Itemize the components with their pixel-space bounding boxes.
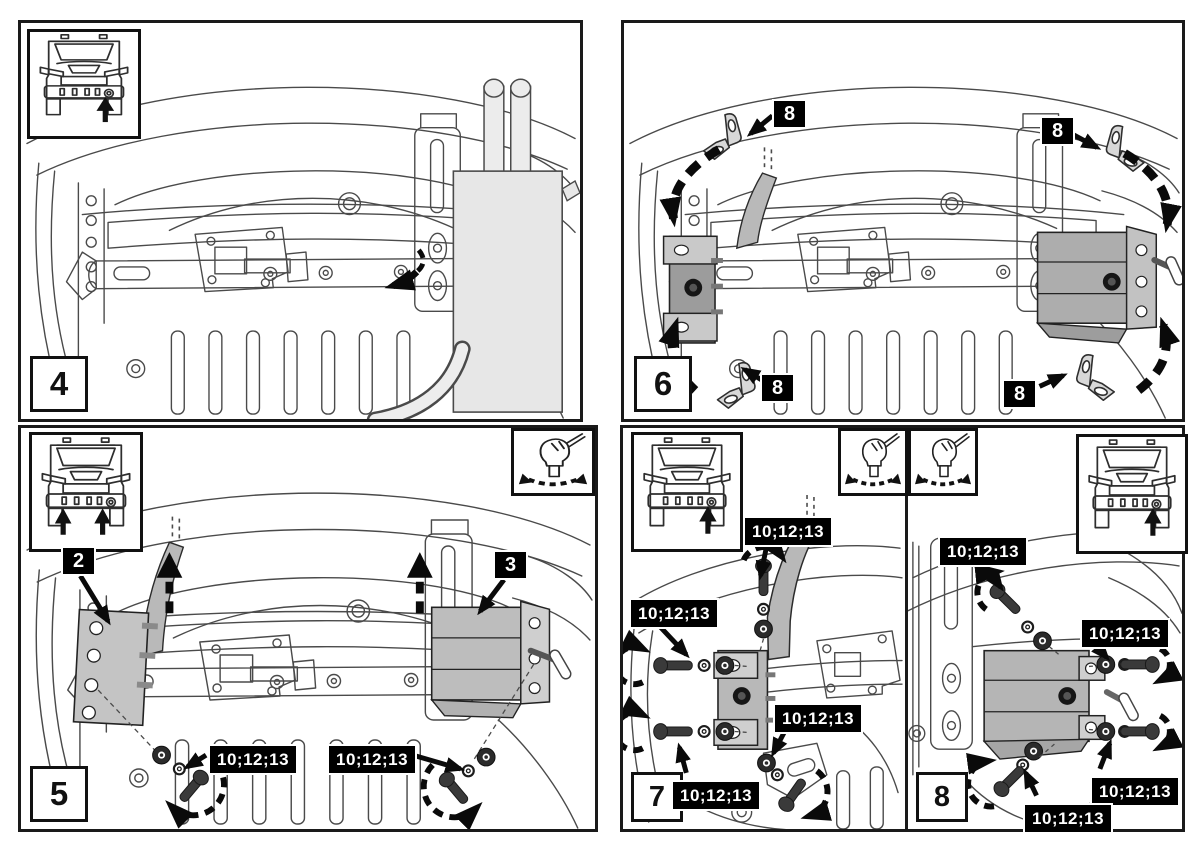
winch-block — [453, 79, 580, 412]
car-position-inset — [631, 432, 743, 552]
step-panel-5: 2 3 10;12;13 10;12;13 5 — [18, 425, 598, 832]
callout-corner-bracket: 8 — [760, 373, 795, 403]
callout-hardware: 10;12;13 — [743, 516, 833, 547]
callout-corner-bracket: 8 — [1040, 116, 1075, 146]
step-panels-7-8: 10;12;13 10;12;13 10;12;13 10;12;13 7 10… — [620, 425, 1185, 832]
callout-hardware: 10;12;13 — [773, 703, 863, 734]
callout-right-bracket: 3 — [493, 550, 528, 580]
up-arrow-icon — [699, 506, 716, 533]
callout-corner-bracket: 8 — [772, 99, 807, 129]
car-position-inset — [29, 432, 143, 552]
callout-hardware: 10;12;13 — [629, 598, 719, 629]
callout-hardware: 10;12;13 — [1080, 618, 1170, 649]
callout-hardware: 10;12;13 — [938, 536, 1028, 567]
step-number-6: 6 — [634, 356, 692, 412]
right-bracket-part-3 — [432, 601, 573, 717]
up-arrow-icon — [55, 508, 72, 534]
up-arrow-icon — [1144, 508, 1161, 535]
car-front-icon — [1089, 440, 1175, 528]
left-mount-bracket — [664, 236, 723, 343]
lift-arrow-icon — [157, 552, 433, 613]
car-position-inset — [27, 29, 141, 139]
hand-tool-icon — [915, 434, 971, 484]
step-number-4: 4 — [30, 356, 88, 412]
underbody-drawing — [624, 23, 1182, 419]
corner-bracket-icon — [717, 363, 754, 408]
left-bracket-part-2 — [74, 610, 159, 726]
step-panel-6: 8 8 8 8 6 — [621, 20, 1185, 422]
corner-bracket-icon — [1077, 355, 1114, 400]
corner-bracket-icon — [1106, 126, 1143, 171]
callout-hardware: 10;12;13 — [1023, 803, 1113, 834]
instruction-sheet: 4 — [0, 0, 1200, 849]
callout-hardware: 10;12;13 — [208, 744, 298, 775]
hose — [375, 349, 462, 419]
step-number-8: 8 — [916, 772, 968, 822]
bolt-washer-assembly — [424, 748, 495, 817]
callout-hardware: 10;12;13 — [671, 780, 761, 811]
step-panel-4: 4 — [18, 20, 583, 422]
callout-left-bracket: 2 — [61, 546, 96, 576]
up-arrow-icon — [94, 508, 111, 534]
hand-tool-inset — [511, 428, 595, 496]
car-front-icon — [42, 438, 129, 526]
hand-tool-inset — [908, 428, 978, 496]
car-front-icon — [40, 35, 127, 115]
callout-corner-bracket: 8 — [1002, 379, 1037, 409]
hand-tool-inset — [838, 428, 908, 496]
bolt-washer-assembly — [977, 572, 1061, 657]
hand-tool-icon — [845, 434, 901, 484]
callout-hardware: 10;12;13 — [327, 744, 417, 775]
car-position-inset — [1076, 434, 1188, 554]
right-mount-bracket — [1038, 226, 1182, 343]
hand-tool-icon — [519, 434, 587, 484]
step-number-5: 5 — [30, 766, 88, 822]
right-bracket-part-3 — [984, 651, 1140, 759]
support-arm — [737, 143, 777, 248]
up-arrow-icon — [96, 97, 114, 122]
car-front-icon — [644, 438, 730, 526]
rotation-arrow-icon — [393, 250, 423, 286]
